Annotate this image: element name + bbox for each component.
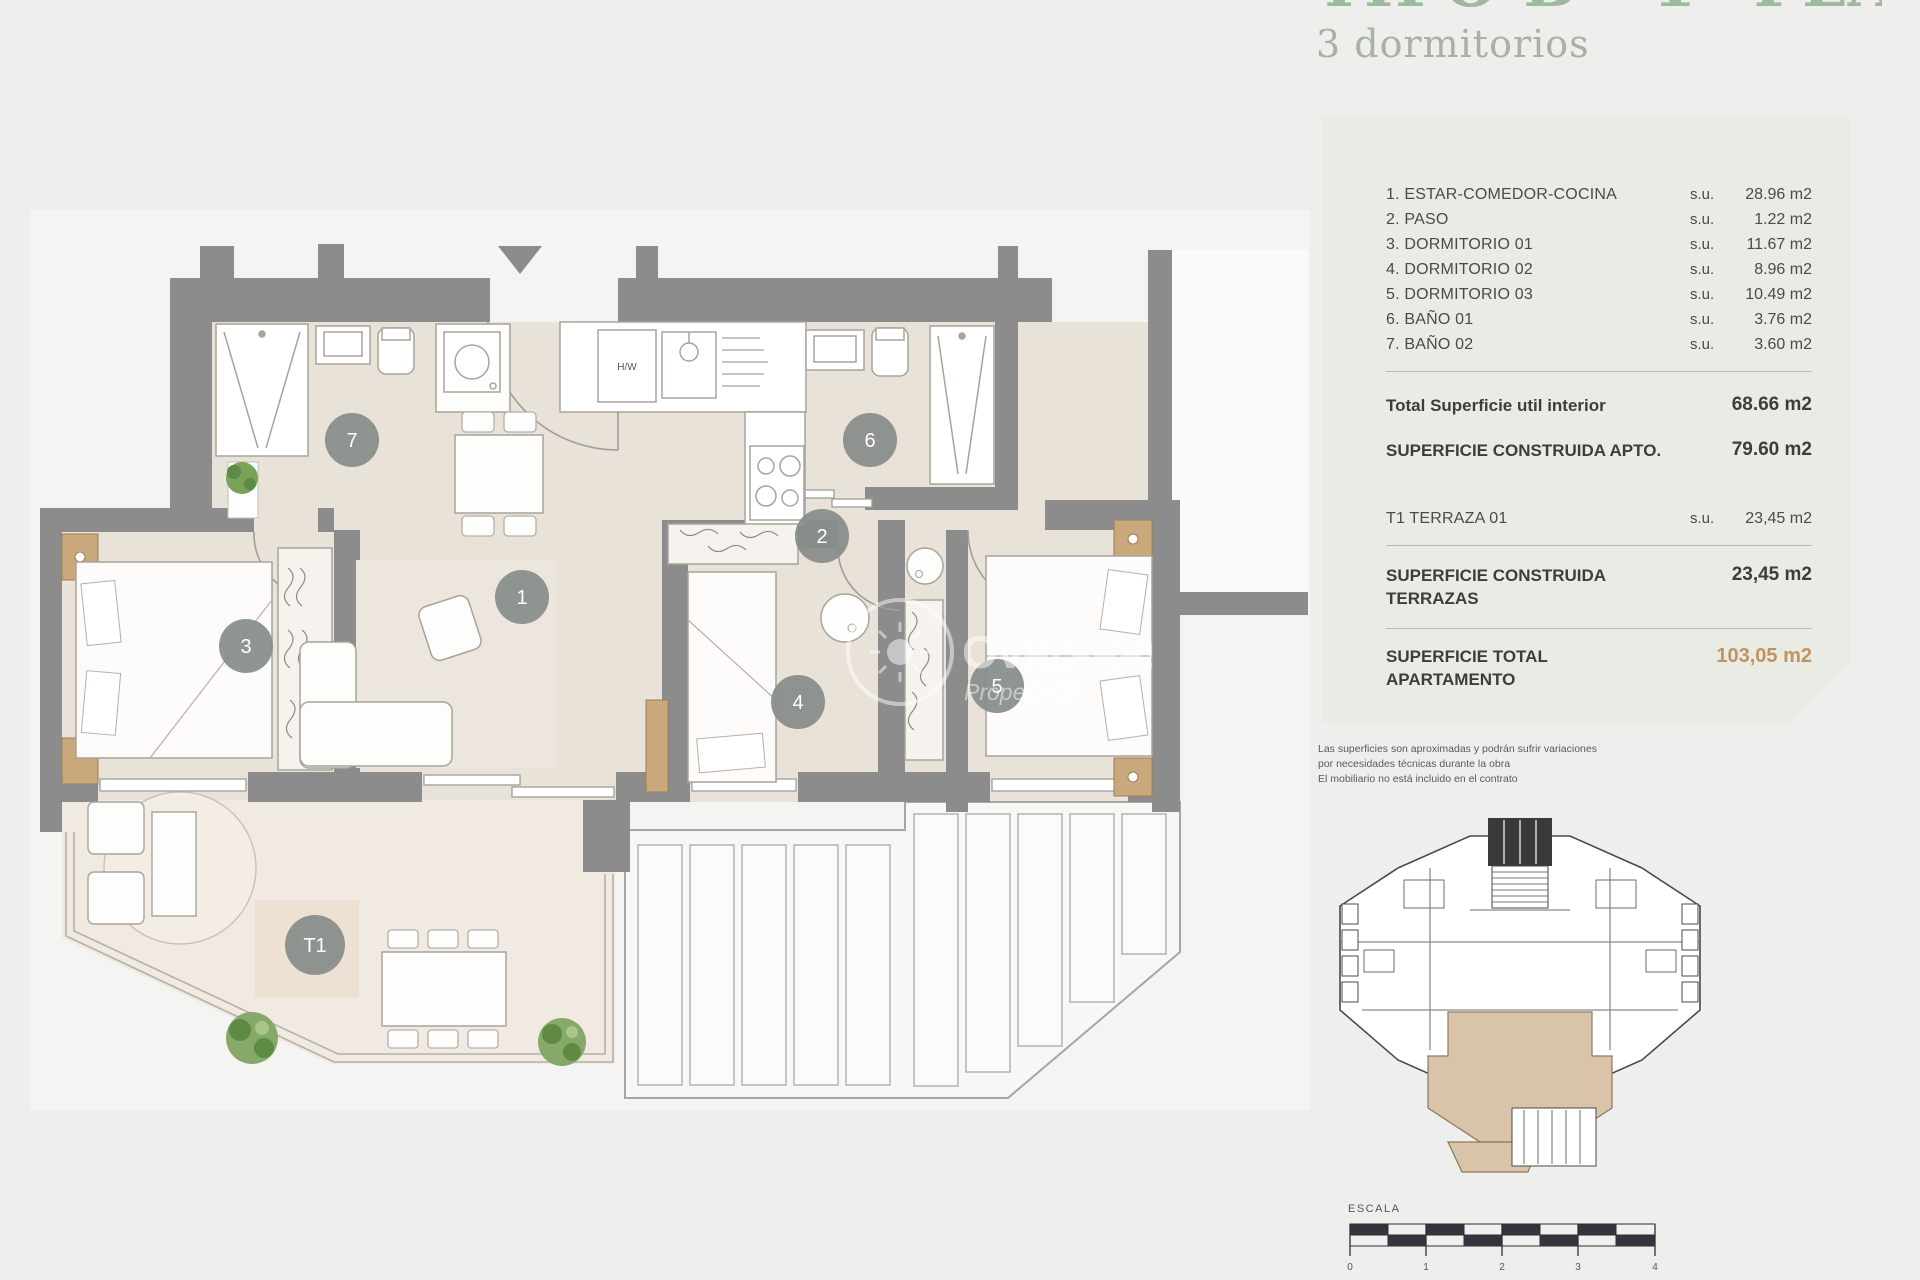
total-area-value: 103,05 m2 [1716, 645, 1812, 668]
total-row: SUPERFICIE TOTALAPARTAMENTO 103,05 m2 [1386, 645, 1812, 691]
svg-text:3: 3 [1575, 1262, 1581, 1273]
area-row: 4. DORMITORIO 02s.u.8.96 m2 [1386, 257, 1812, 282]
svg-text:1: 1 [1423, 1262, 1429, 1273]
area-row: 3. DORMITORIO 01s.u.11.67 m2 [1386, 232, 1812, 257]
terrace-marker: T1 [285, 915, 345, 975]
room-marker-2: 2 [795, 509, 849, 563]
neighbour-room [1172, 250, 1308, 592]
svg-text:Property N: Property N [964, 679, 1074, 705]
divider [1386, 545, 1812, 546]
area-row: 2. PASOs.u.1.22 m2 [1386, 207, 1812, 232]
surface-summary-panel: 1. ESTAR-COMEDOR-COCINAs.u.28.96 m2 2. P… [1322, 116, 1850, 722]
svg-text:6: 6 [864, 430, 875, 452]
disclaimer-text: Las superficies son aproximadas y podrán… [1318, 742, 1597, 787]
room-marker-1: 1 [495, 570, 549, 624]
scale-bar: ESCALA 0 1 2 3 4 [1347, 1203, 1658, 1273]
room-marker-6: 6 [843, 413, 897, 467]
room-marker-7: 7 [325, 413, 379, 467]
svg-text:0: 0 [1347, 1262, 1353, 1273]
svg-text:4: 4 [1652, 1262, 1658, 1273]
divider [1386, 371, 1812, 372]
svg-text:Overseas: Overseas [962, 626, 1169, 678]
svg-text:7: 7 [346, 430, 357, 452]
constructed-row: SUPERFICIE CONSTRUIDA APTO. 79.60 m2 [1386, 439, 1812, 462]
room-marker-4: 4 [771, 675, 825, 729]
svg-text:1: 1 [516, 587, 527, 609]
building-key-plan [1340, 818, 1700, 1172]
divider [1386, 628, 1812, 629]
room-marker-3: 3 [219, 619, 273, 673]
area-row: 7. BAÑO 02s.u.3.60 m2 [1386, 332, 1812, 357]
scale-label: ESCALA [1348, 1203, 1400, 1215]
plant-icon [226, 462, 258, 518]
constructed-terraces-row: SUPERFICIE CONSTRUIDATERRAZAS 23,45 m2 [1386, 564, 1812, 610]
area-row: 6. BAÑO 01s.u.3.76 m2 [1386, 307, 1812, 332]
svg-text:T1: T1 [303, 935, 326, 957]
svg-text:2: 2 [1499, 1262, 1505, 1273]
svg-text:2: 2 [816, 526, 827, 548]
hw-label: H/W [617, 362, 637, 373]
keyplan-highlight [1428, 1012, 1612, 1172]
bedroom-01-furniture [62, 534, 332, 784]
terrace-row: T1 TERRAZA 01 s.u. 23,45 m2 [1386, 506, 1812, 531]
total-util-row: Total Superficie util interior 68.66 m2 [1386, 394, 1812, 417]
scale-ticks: 0 1 2 3 4 [1347, 1262, 1658, 1273]
svg-text:3: 3 [240, 636, 251, 658]
area-row: 1. ESTAR-COMEDOR-COCINAs.u.28.96 m2 [1386, 182, 1812, 207]
svg-text:4: 4 [792, 692, 803, 714]
area-row: 5. DORMITORIO 03s.u.10.49 m2 [1386, 282, 1812, 307]
